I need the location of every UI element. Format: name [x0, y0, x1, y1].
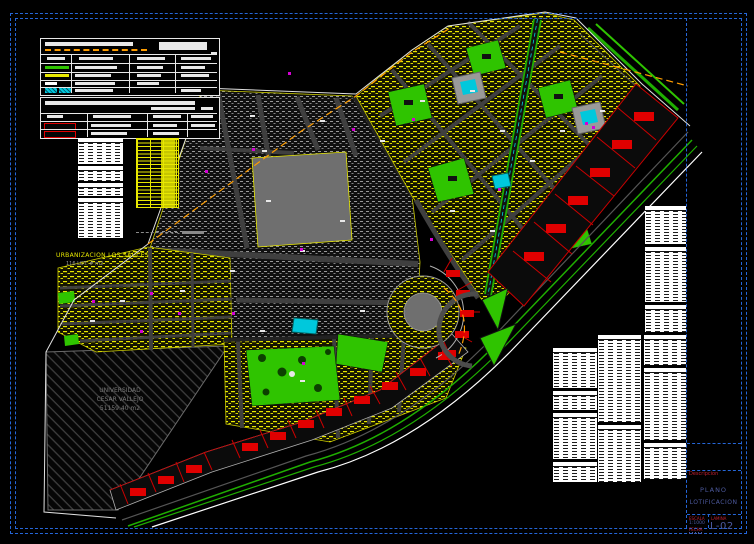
- reference-dashed-line: [136, 232, 178, 233]
- titleblock-divider: [708, 514, 709, 528]
- reserve-line-2: CESAR VALLEJO: [68, 395, 172, 404]
- lot-area-table: [645, 206, 686, 244]
- lot-area-table: [645, 305, 686, 332]
- titleblock-separator: [687, 514, 741, 515]
- lot-area-table: [644, 443, 686, 479]
- reserve-line-3: 51159.40 m2: [68, 404, 172, 413]
- legend-title-bar: [151, 107, 195, 110]
- lot-area-table: [553, 348, 597, 388]
- titleblock-border: [686, 18, 687, 528]
- yellow-line-swatch: [45, 74, 69, 77]
- descripcion-label: Descripcion: [689, 472, 718, 477]
- legend-text-bar: [75, 82, 115, 85]
- lot-area-table: [553, 391, 597, 410]
- red-outline-lot-swatch: [44, 131, 76, 138]
- cyan-hatch-swatch: [45, 88, 57, 93]
- legend-header-bar: [153, 115, 181, 118]
- legend-grid-line: [147, 113, 148, 137]
- legend-header-bar: [47, 57, 65, 60]
- legend-title-bar: [45, 42, 133, 46]
- lot-area-table: [553, 462, 597, 482]
- legend-text-bar: [181, 74, 209, 77]
- lotificacion-title: LOTIFICACION: [686, 499, 741, 506]
- legend-title-bar: [45, 101, 195, 105]
- lot-area-table: [78, 183, 123, 196]
- legend-text-bar: [181, 89, 201, 92]
- legend-header-bar: [47, 115, 63, 118]
- white-line-swatch: [45, 82, 57, 85]
- legend-panel-lots: [40, 97, 220, 139]
- legend-text-bar: [153, 132, 179, 135]
- legend-text-bar: [75, 74, 111, 77]
- reserve-area-label: UNIVERSIDAD CESAR VALLEJO 51159.40 m2: [68, 386, 172, 413]
- legend-grid-line: [175, 54, 176, 93]
- legend-text-bar: [191, 124, 215, 127]
- legend-text-bar: [137, 66, 163, 69]
- legend-text-bar: [181, 66, 205, 69]
- plano-title: PLANO: [686, 486, 741, 494]
- orange-dashed-line-swatch: [45, 49, 147, 51]
- legend-grid-line: [187, 113, 188, 137]
- legend-text-bar: [153, 124, 177, 127]
- lot-area-table: [598, 335, 641, 422]
- lot-area-table: [644, 368, 686, 440]
- legend-grid-line: [41, 121, 217, 122]
- legend-title-bar: [159, 42, 207, 50]
- lot-area-table: [645, 247, 686, 302]
- legend-text-bar: [75, 66, 117, 69]
- legend-title-bar: [201, 107, 213, 110]
- lot-area-table: [78, 198, 123, 238]
- legend-text-bar: [91, 124, 131, 127]
- legend-text-bar: [137, 82, 159, 85]
- cyan-hatch-swatch: [59, 88, 71, 93]
- lot-area-table: [78, 138, 123, 164]
- legend-grid-line: [87, 113, 88, 137]
- escala-value: 1:1000: [689, 521, 705, 526]
- legend-text-bar: [91, 132, 127, 135]
- legend-text-bar: [75, 89, 113, 92]
- legend-text-bar: [137, 74, 161, 77]
- lot-schedule-table: [136, 138, 179, 208]
- lot-area-table: [598, 425, 641, 482]
- legend-grid-line: [41, 129, 217, 130]
- legend-grid-line: [129, 54, 130, 93]
- legend-header-bar: [191, 115, 213, 118]
- lot-area-table: [78, 166, 123, 181]
- reserve-line-1: UNIVERSIDAD: [68, 386, 172, 395]
- lot-area-table: [644, 335, 686, 365]
- green-line-swatch: [45, 66, 69, 69]
- titleblock-separator: [687, 443, 741, 444]
- lot-area-table: [553, 413, 597, 459]
- legend-header-bar: [93, 115, 131, 118]
- urbanization-name-label: URBANIZACION LOS SAUCES: [56, 252, 149, 259]
- urbanization-area-label: 116 LOT. # m2: [66, 261, 103, 267]
- fecha-value-bar: [689, 532, 703, 534]
- reference-label-bar: [182, 231, 204, 234]
- sheet-number: L-02: [710, 521, 734, 532]
- legend-panel-linetypes: [40, 38, 220, 96]
- cad-sheet: URBANIZACION LOS SAUCES 116 LOT. # m2 UN…: [0, 0, 754, 544]
- legend-grid-line: [71, 54, 72, 93]
- legend-header-bar: [137, 57, 165, 60]
- legend-grid-line: [41, 113, 217, 114]
- legend-header-bar: [79, 57, 113, 60]
- legend-header-bar: [181, 57, 211, 60]
